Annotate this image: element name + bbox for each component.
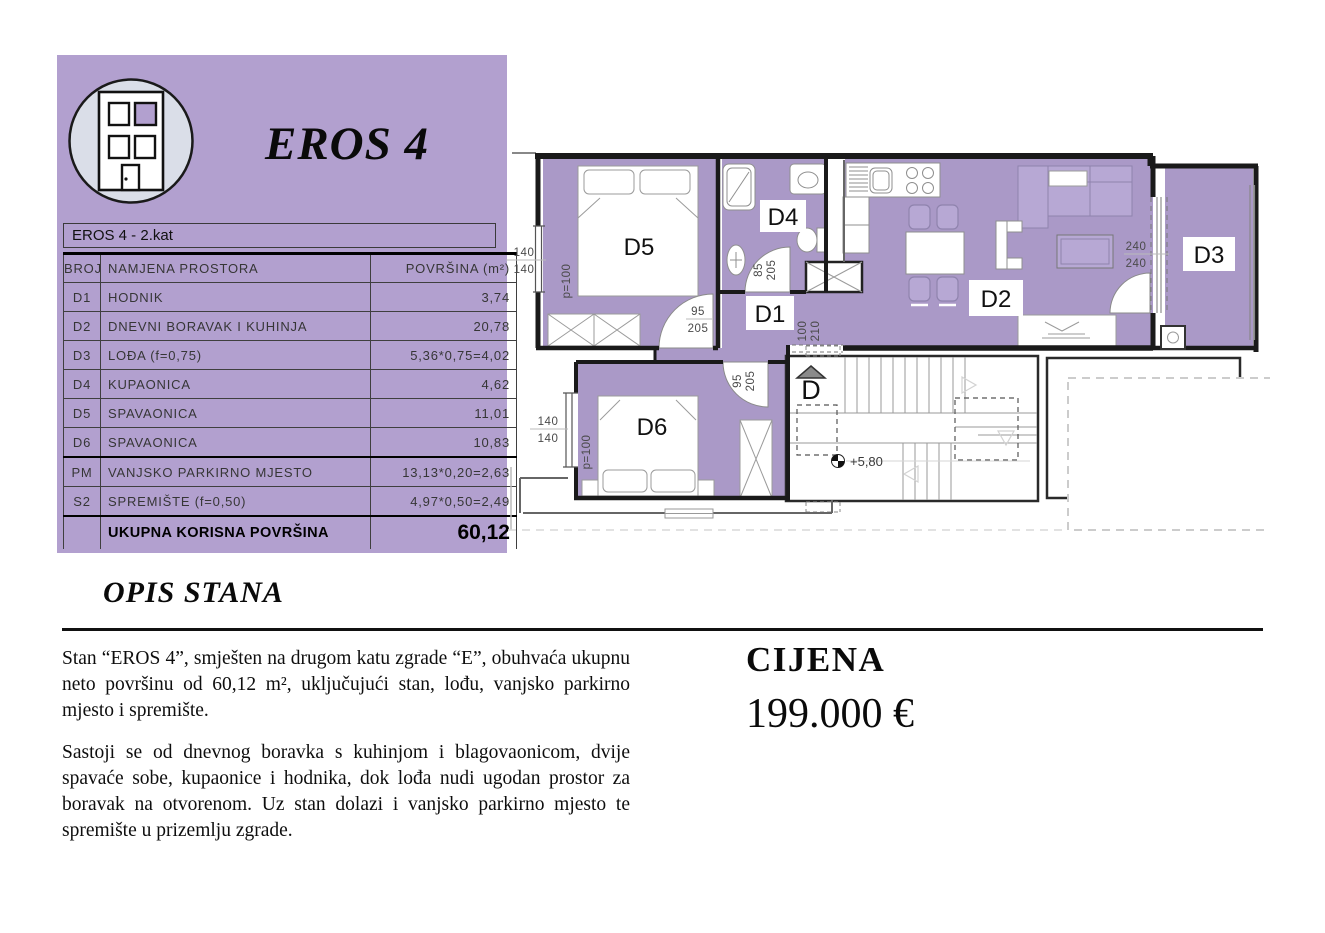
row-area: 13,13*0,20=2,63 xyxy=(371,457,517,487)
dim-door-d4-w: 85 xyxy=(753,263,765,277)
dim-door-stairs-h: 210 xyxy=(810,321,822,342)
row-name: KUPAONICA xyxy=(101,370,371,399)
table-row: D1 HODNIK 3,74 xyxy=(64,283,517,312)
room-label-d1: D1 xyxy=(755,301,786,328)
row-area: 4,97*0,50=2,49 xyxy=(371,487,517,517)
table-row: D6 SPAVAONICA 10,83 xyxy=(64,428,517,458)
row-id: S2 xyxy=(64,487,101,517)
room-label-d5: D5 xyxy=(624,234,655,261)
floor-plan: D5 D4 D1 D2 D3 D6 D 140 140 p=100 140 14… xyxy=(505,135,1270,570)
row-id: D6 xyxy=(64,428,101,458)
row-name: SPAVAONICA xyxy=(101,399,371,428)
dim-door-d5-w: 95 xyxy=(691,306,705,318)
dim-door-d5-h: 205 xyxy=(688,323,709,335)
dim-window-d5-bottom: 140 xyxy=(514,264,535,276)
row-id: D2 xyxy=(64,312,101,341)
row-id: D3 xyxy=(64,341,101,370)
level-label: +5,80 xyxy=(850,454,883,469)
row-name: VANJSKO PARKIRNO MJESTO xyxy=(101,457,371,487)
col-povrsina: POVRŠINA (m²) xyxy=(371,254,517,283)
dim-window-d6-bottom: 140 xyxy=(538,433,559,445)
table-row: PM VANJSKO PARKIRNO MJESTO 13,13*0,20=2,… xyxy=(64,457,517,487)
unit-subtitle: EROS 4 - 2.kat xyxy=(63,223,496,248)
dim-door-d6-w: 95 xyxy=(732,374,744,388)
row-id: PM xyxy=(64,457,101,487)
row-area: 11,01 xyxy=(371,399,517,428)
description-paragraph-1: Stan “EROS 4”, smješten na drugom katu z… xyxy=(62,646,630,724)
room-label-d2: D2 xyxy=(981,286,1012,313)
dim-door-stairs-w: 100 xyxy=(797,321,809,342)
row-name: LOĐA (f=0,75) xyxy=(101,341,371,370)
stairwell xyxy=(786,346,1038,512)
table-row: D3 LOĐA (f=0,75) 5,36*0,75=4,02 xyxy=(64,341,517,370)
price-value: 199.000 € xyxy=(746,690,914,738)
row-name: DNEVNI BORAVAK I KUHINJA xyxy=(101,312,371,341)
row-name: SPAVAONICA xyxy=(101,428,371,458)
table-total-row: UKUPNA KORISNA POVRŠINA 60,12 xyxy=(64,516,517,549)
row-area: 3,74 xyxy=(371,283,517,312)
row-id: D1 xyxy=(64,283,101,312)
adjacent-room xyxy=(1047,358,1270,530)
total-value: 60,12 xyxy=(371,516,517,549)
description-heading: OPIS STANA xyxy=(103,576,284,610)
row-name: HODNIK xyxy=(101,283,371,312)
hall-niche xyxy=(806,262,862,292)
col-broj: BROJ xyxy=(64,254,101,283)
divider-rule xyxy=(62,628,1263,631)
area-table: BROJ NAMJENA PROSTORA POVRŠINA (m²) D1 H… xyxy=(63,252,500,549)
table-row: S2 SPREMIŠTE (f=0,50) 4,97*0,50=2,49 xyxy=(64,487,517,517)
price-label: CIJENA xyxy=(746,640,885,680)
building-icon xyxy=(66,76,196,206)
dim-door-d6-h: 205 xyxy=(745,371,757,392)
room-label-d6: D6 xyxy=(637,414,668,441)
project-title: EROS 4 xyxy=(207,117,487,171)
dim-slider-h: 240 xyxy=(1126,258,1147,270)
dim-slider-w: 240 xyxy=(1126,241,1147,253)
row-name: SPREMIŠTE (f=0,50) xyxy=(101,487,371,517)
row-area: 20,78 xyxy=(371,312,517,341)
sliding-door xyxy=(1151,197,1167,313)
page: EROS 4 EROS 4 - 2.kat BROJ NAMJENA PROST… xyxy=(0,0,1325,933)
col-namjena: NAMJENA PROSTORA xyxy=(101,254,371,283)
info-card: EROS 4 EROS 4 - 2.kat BROJ NAMJENA PROST… xyxy=(57,55,507,553)
utility-box xyxy=(1161,326,1185,349)
row-id: D4 xyxy=(64,370,101,399)
dim-parapet-d6: p=100 xyxy=(581,435,593,470)
row-area: 4,62 xyxy=(371,370,517,399)
total-label: UKUPNA KORISNA POVRŠINA xyxy=(101,516,371,549)
total-spacer xyxy=(64,516,101,549)
stairs-label: D xyxy=(801,375,821,405)
table-header-row: BROJ NAMJENA PROSTORA POVRŠINA (m²) xyxy=(64,254,517,283)
row-area: 5,36*0,75=4,02 xyxy=(371,341,517,370)
row-area: 10,83 xyxy=(371,428,517,458)
room-label-d3: D3 xyxy=(1194,242,1225,269)
table-row: D5 SPAVAONICA 11,01 xyxy=(64,399,517,428)
table-row: D2 DNEVNI BORAVAK I KUHINJA 20,78 xyxy=(64,312,517,341)
table-row: D4 KUPAONICA 4,62 xyxy=(64,370,517,399)
room-label-d4: D4 xyxy=(768,204,799,231)
dim-window-d5-top: 140 xyxy=(514,247,535,259)
dim-door-d4-h: 205 xyxy=(766,260,778,281)
description-paragraph-2: Sastoji se od dnevnog boravka s kuhinjom… xyxy=(62,740,630,844)
dim-window-d6-top: 140 xyxy=(538,416,559,428)
dim-parapet-d5: p=100 xyxy=(561,264,573,299)
row-id: D5 xyxy=(64,399,101,428)
